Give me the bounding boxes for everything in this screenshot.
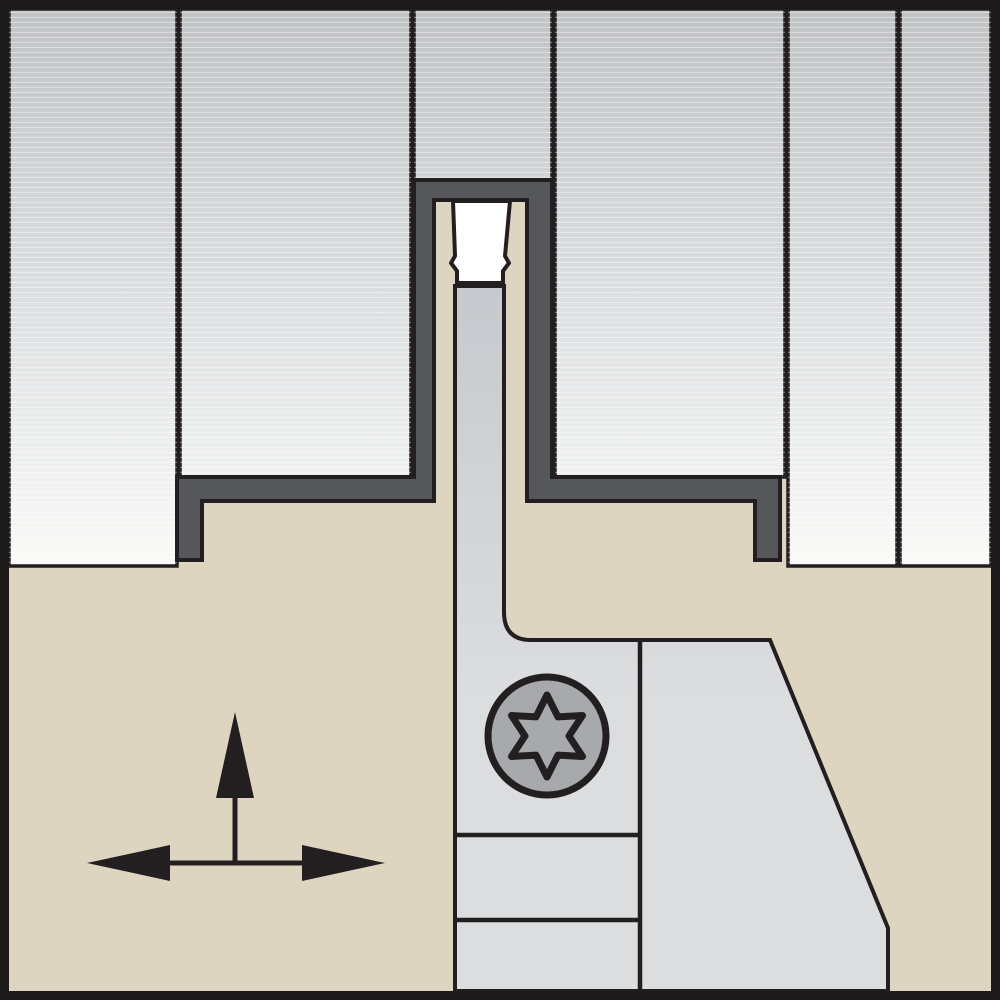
cutting-insert	[451, 201, 510, 283]
diagram-canvas	[0, 0, 1000, 1000]
up-arrow-stem	[233, 793, 238, 865]
left-right-arrow-bar	[165, 861, 307, 866]
grooving-tool-diagram	[0, 0, 1000, 1000]
clamp-screw	[488, 677, 606, 795]
